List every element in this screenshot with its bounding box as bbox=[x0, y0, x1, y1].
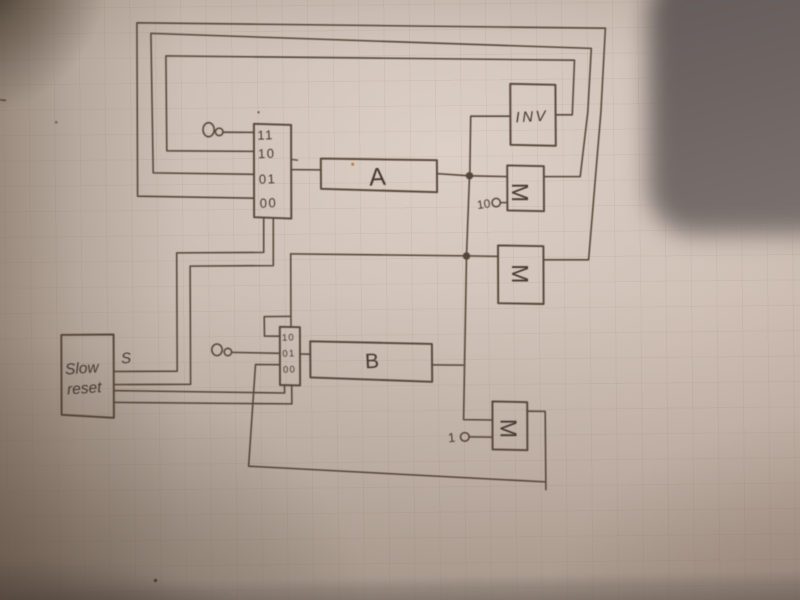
svg-text:B: B bbox=[364, 350, 379, 374]
svg-text:10: 10 bbox=[476, 196, 491, 212]
svg-text:01: 01 bbox=[282, 348, 295, 359]
svg-text:1: 1 bbox=[447, 430, 456, 446]
svg-text:00: 00 bbox=[259, 195, 277, 211]
svg-text:M: M bbox=[496, 419, 522, 438]
svg-text:M: M bbox=[507, 264, 533, 283]
svg-text:M: M bbox=[507, 183, 533, 202]
svg-text:00: 00 bbox=[283, 364, 296, 375]
svg-text:S: S bbox=[120, 350, 131, 368]
svg-text:INV: INV bbox=[515, 108, 548, 127]
svg-text:11: 11 bbox=[257, 127, 274, 143]
svg-text:A: A bbox=[368, 163, 386, 192]
svg-text:reset: reset bbox=[66, 379, 102, 398]
svg-text:01: 01 bbox=[259, 171, 277, 187]
svg-text:10: 10 bbox=[282, 332, 295, 343]
svg-text:10: 10 bbox=[258, 146, 276, 162]
svg-text:Slow: Slow bbox=[64, 359, 101, 378]
